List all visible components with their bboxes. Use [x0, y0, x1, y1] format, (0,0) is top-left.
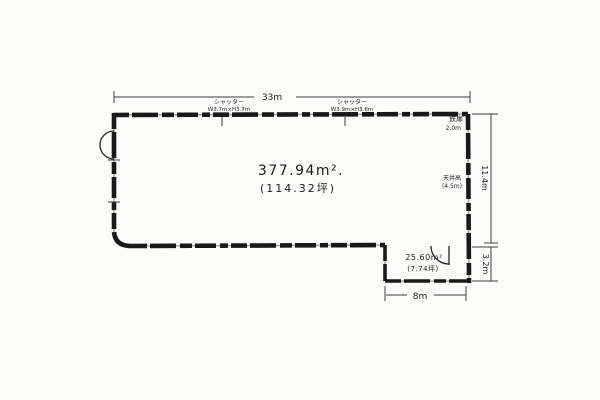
shutter-1-label: シャッター: [214, 98, 244, 106]
ceiling-height-value: (4.5m): [442, 183, 462, 190]
top-dimension-line: [114, 91, 470, 103]
top-wall: [113, 114, 468, 115]
floorplan-drawing: 33m シャッター W3.7m×H3.7m シャッター W3.9m×H3.6m …: [0, 0, 600, 400]
top-dimension-label: 33m: [262, 93, 282, 103]
main-area-sqm: 377.94m².: [258, 163, 344, 179]
steel-door-size: 2.0m: [446, 125, 462, 132]
floorplan-page: 33m シャッター W3.7m×H3.7m シャッター W3.9m×H3.6m …: [0, 0, 600, 400]
bottom-wall-main: [131, 245, 385, 246]
shutter-1-size: W3.7m×H3.7m: [208, 107, 250, 113]
steel-door-label: 鉄扉: [449, 114, 463, 123]
bottom-dimension-label: 8m: [413, 292, 428, 302]
left-wall: [114, 113, 131, 246]
annex-area-tsubo: (7.74坪): [407, 265, 439, 273]
shutter-2-label: シャッター: [337, 98, 367, 106]
ceiling-height-label: 天井高: [443, 174, 461, 182]
shutter-2-size: W3.9m×H3.6m: [331, 107, 373, 113]
main-area-tsubo: (114.32坪): [260, 182, 336, 195]
annex-area-sqm: 25.60m²: [405, 253, 442, 262]
right-dimension-label-main: 11.4m: [480, 165, 489, 191]
right-wall: [468, 114, 469, 283]
right-dimension-label-annex: 3.2m: [481, 254, 490, 275]
